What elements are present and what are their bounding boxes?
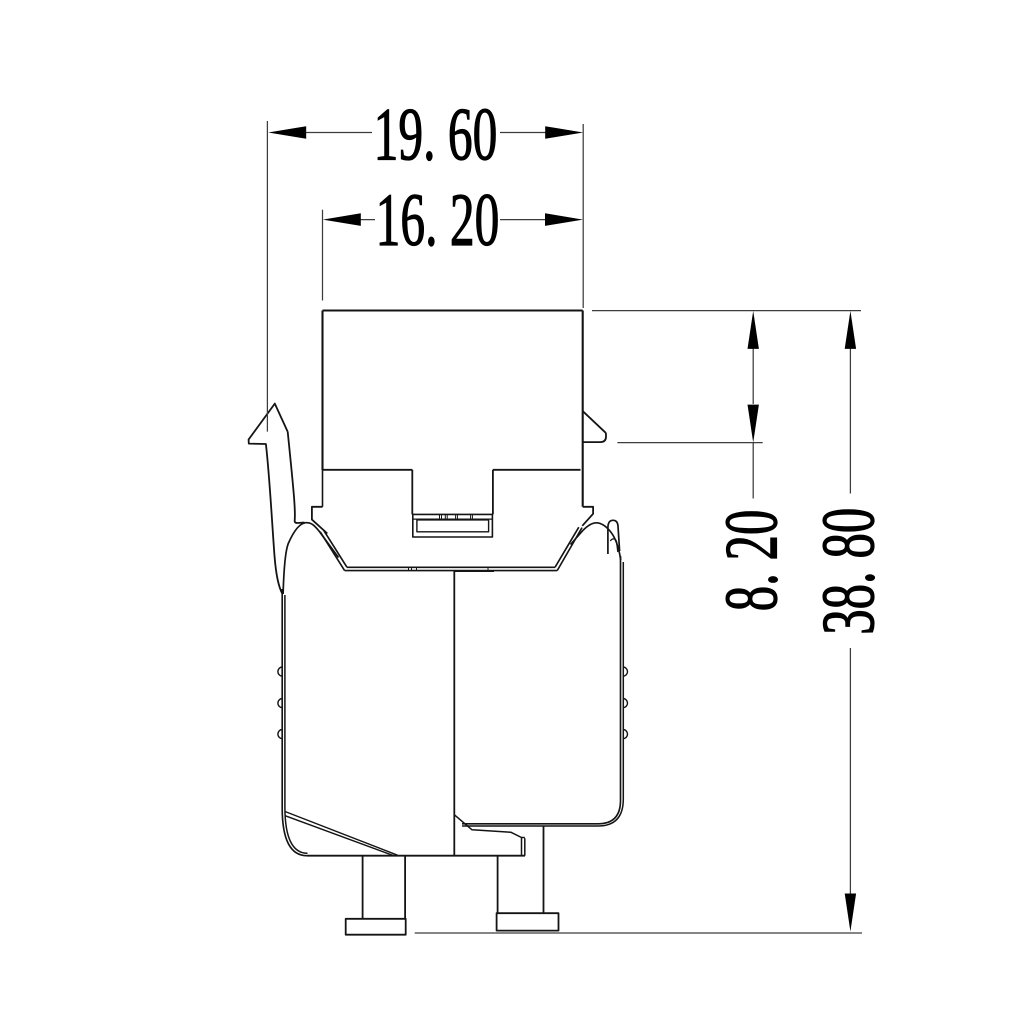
svg-text:16. 20: 16. 20 [376, 178, 500, 262]
svg-text:19. 60: 19. 60 [374, 92, 498, 176]
svg-text:38. 80: 38. 80 [807, 508, 890, 635]
svg-text:8. 20: 8. 20 [710, 510, 793, 612]
